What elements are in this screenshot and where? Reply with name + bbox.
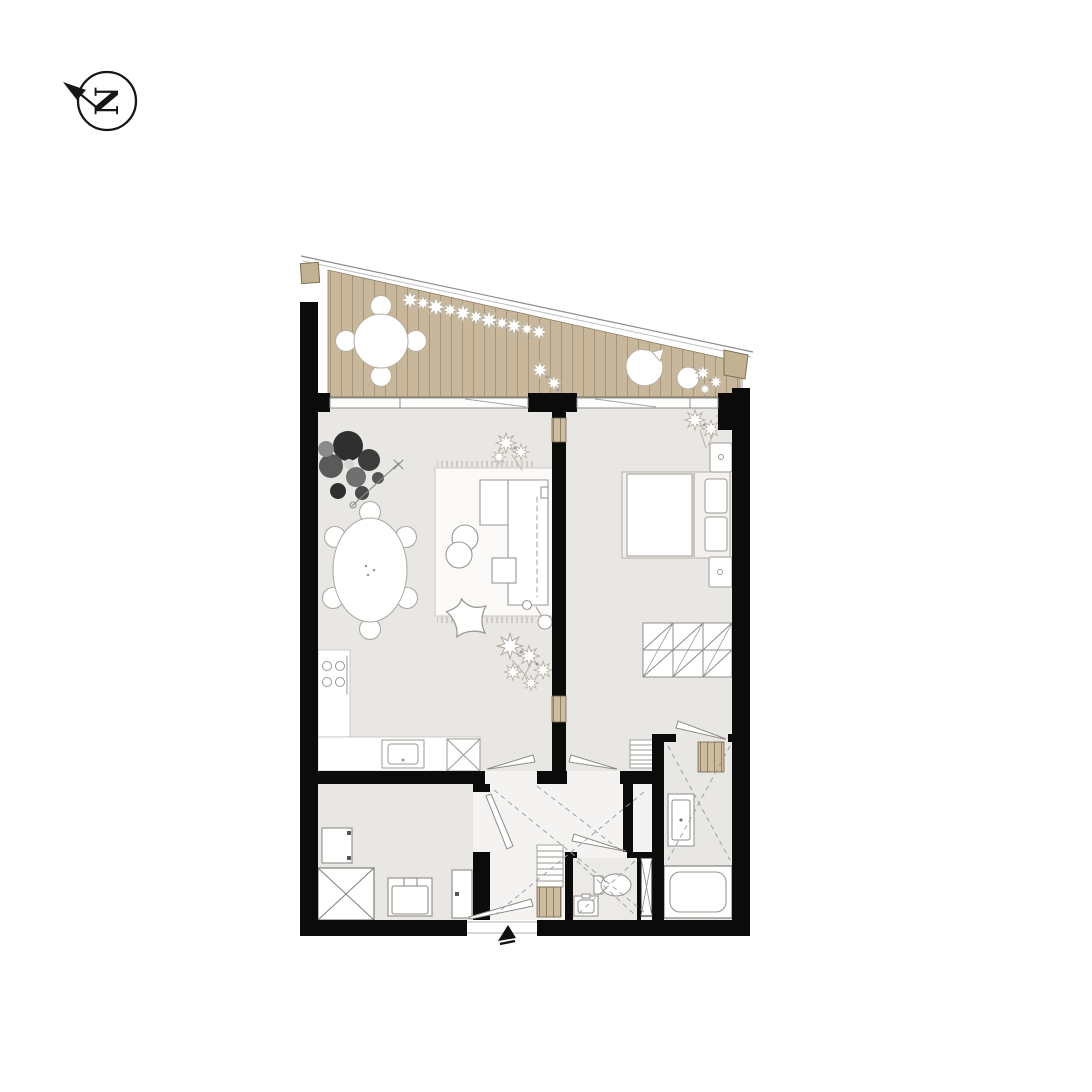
toilet — [594, 874, 631, 896]
slim-cabinet — [452, 870, 472, 918]
floor-plan: N — [0, 0, 1092, 1092]
shaft — [552, 418, 566, 442]
nightstand — [709, 557, 732, 587]
shelf — [537, 845, 563, 887]
window-bedroom — [577, 398, 718, 408]
hall-fixtures — [537, 845, 563, 917]
windows — [330, 398, 718, 408]
balcony-chair — [336, 331, 357, 352]
washbasin-small — [574, 894, 598, 916]
balcony-post — [300, 262, 319, 283]
dryer — [388, 878, 432, 916]
pillow — [705, 517, 727, 551]
window-living — [330, 398, 528, 408]
kitchen-counter — [318, 650, 350, 737]
shaft — [552, 696, 566, 722]
dining-table — [333, 518, 407, 622]
north-letter: N — [88, 86, 126, 115]
kitchen-sink — [382, 740, 424, 768]
balcony-chair — [371, 296, 392, 317]
north-compass: N — [63, 72, 136, 130]
nightstand — [710, 443, 732, 472]
shaft — [537, 887, 561, 917]
bathtub — [664, 866, 732, 918]
mattress — [627, 474, 692, 556]
bedroom-floor — [566, 408, 732, 771]
pillow — [705, 479, 727, 513]
appliance — [447, 739, 480, 771]
duct-shaft — [641, 858, 652, 916]
shaft — [698, 742, 724, 772]
floor-plan-page: N — [0, 0, 1092, 1092]
shelf — [630, 740, 653, 768]
side-table — [492, 558, 516, 583]
coffee-table — [446, 542, 472, 568]
balcony-chair — [371, 366, 392, 387]
balcony — [300, 256, 753, 397]
bed — [622, 472, 730, 558]
balcony-post — [724, 350, 748, 379]
tall-cabinet — [322, 828, 352, 863]
washing-machine — [318, 868, 374, 920]
balcony-chair — [406, 331, 427, 352]
pouf — [677, 367, 699, 389]
balcony-table — [354, 314, 408, 368]
wardrobe — [643, 623, 732, 677]
